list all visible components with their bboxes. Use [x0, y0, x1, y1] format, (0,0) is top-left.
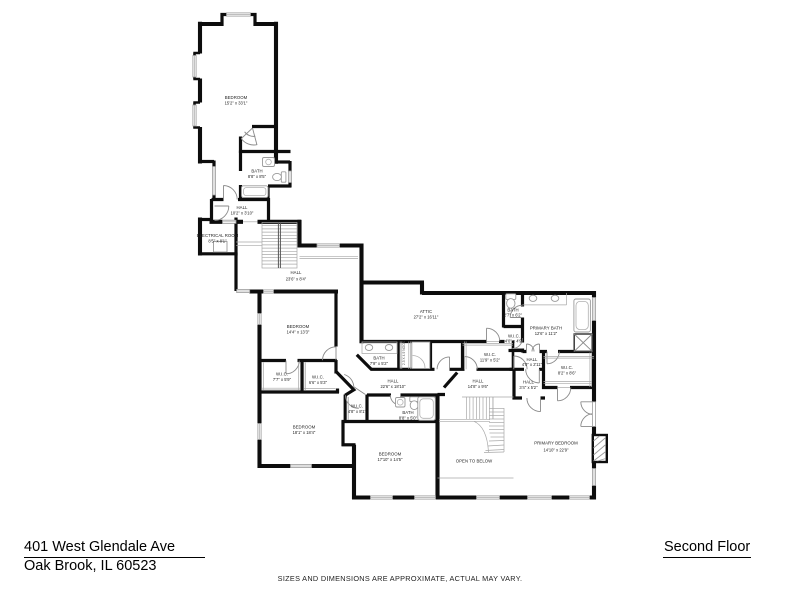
svg-text:15'2" x 33'1": 15'2" x 33'1" — [225, 101, 248, 106]
svg-text:4'0" x 2'11": 4'0" x 2'11" — [522, 362, 543, 367]
svg-text:6'6" x 5'3": 6'6" x 5'3" — [309, 380, 328, 385]
svg-text:4'0" x 4'9": 4'0" x 4'9" — [505, 339, 524, 344]
svg-text:7'7" x 5'9": 7'7" x 5'9" — [273, 377, 292, 382]
svg-text:14'10" x 22'9": 14'10" x 22'9" — [543, 448, 569, 453]
svg-text:BEDROOM: BEDROOM — [379, 452, 402, 457]
svg-text:HALL: HALL — [388, 379, 400, 384]
svg-text:18'1" x 18'4": 18'1" x 18'4" — [293, 430, 316, 435]
svg-text:HALL: HALL — [237, 205, 249, 210]
svg-text:OPEN TO BELOW: OPEN TO BELOW — [456, 459, 493, 464]
svg-text:BEDROOM: BEDROOM — [225, 95, 248, 100]
svg-text:W.I.C.: W.I.C. — [508, 334, 520, 339]
svg-text:11'9" x 5'2": 11'9" x 5'2" — [480, 358, 501, 363]
svg-text:PRIMARY BEDROOM: PRIMARY BEDROOM — [534, 441, 578, 446]
svg-text:14'4" x 13'3": 14'4" x 13'3" — [287, 330, 310, 335]
svg-text:8'2" x 8'6": 8'2" x 8'6" — [558, 371, 577, 376]
svg-text:8'5" x 8'1": 8'5" x 8'1" — [208, 239, 227, 244]
svg-text:7'9" x 5'2": 7'9" x 5'2" — [370, 361, 389, 366]
svg-text:10'2" x 3'10": 10'2" x 3'10" — [231, 211, 254, 216]
svg-text:HALL: HALL — [473, 379, 485, 384]
svg-text:23'6" x 8'4": 23'6" x 8'4" — [286, 277, 307, 282]
svg-text:W.I.C.: W.I.C. — [484, 352, 496, 357]
svg-text:27'2" x 16'11": 27'2" x 16'11" — [414, 315, 439, 320]
svg-text:8'8" x 5'0": 8'8" x 5'0" — [399, 416, 418, 421]
svg-text:2.5 X 4.9 NOOK: 2.5 X 4.9 NOOK — [402, 340, 406, 365]
svg-text:HALL: HALL — [291, 270, 303, 275]
svg-text:12'6" x 11'2": 12'6" x 11'2" — [535, 331, 558, 336]
svg-text:BATH: BATH — [373, 356, 384, 361]
svg-text:HALL: HALL — [527, 357, 539, 362]
svg-text:W.I.C.: W.I.C. — [351, 404, 363, 409]
svg-text:BATH: BATH — [251, 169, 262, 174]
svg-text:8'8" x 8'5": 8'8" x 8'5" — [248, 174, 267, 179]
svg-text:HALL: HALL — [523, 380, 535, 385]
svg-text:4'8" x 8'1": 4'8" x 8'1" — [348, 409, 367, 414]
svg-text:2'7" x 6'2": 2'7" x 6'2" — [504, 313, 523, 318]
svg-text:3'4" x 5'2": 3'4" x 5'2" — [519, 385, 538, 390]
svg-text:BATH: BATH — [402, 410, 413, 415]
svg-text:W.I.C.: W.I.C. — [561, 365, 573, 370]
svg-text:BEDROOM: BEDROOM — [293, 425, 316, 430]
svg-text:BATH: BATH — [507, 308, 518, 313]
svg-text:22'6" x 18'10": 22'6" x 18'10" — [380, 384, 406, 389]
svg-text:ATTIC: ATTIC — [420, 309, 432, 314]
svg-text:W.I.C.: W.I.C. — [312, 375, 324, 380]
svg-text:14'8" x 9'6": 14'8" x 9'6" — [468, 384, 489, 389]
svg-text:BEDROOM: BEDROOM — [287, 324, 310, 329]
svg-text:17'10" x 14'5": 17'10" x 14'5" — [377, 457, 403, 462]
svg-text:W.I.C.: W.I.C. — [276, 372, 288, 377]
svg-text:ELECTRICAL ROOM: ELECTRICAL ROOM — [197, 233, 239, 238]
svg-text:PRIMARY BATH: PRIMARY BATH — [530, 326, 562, 331]
